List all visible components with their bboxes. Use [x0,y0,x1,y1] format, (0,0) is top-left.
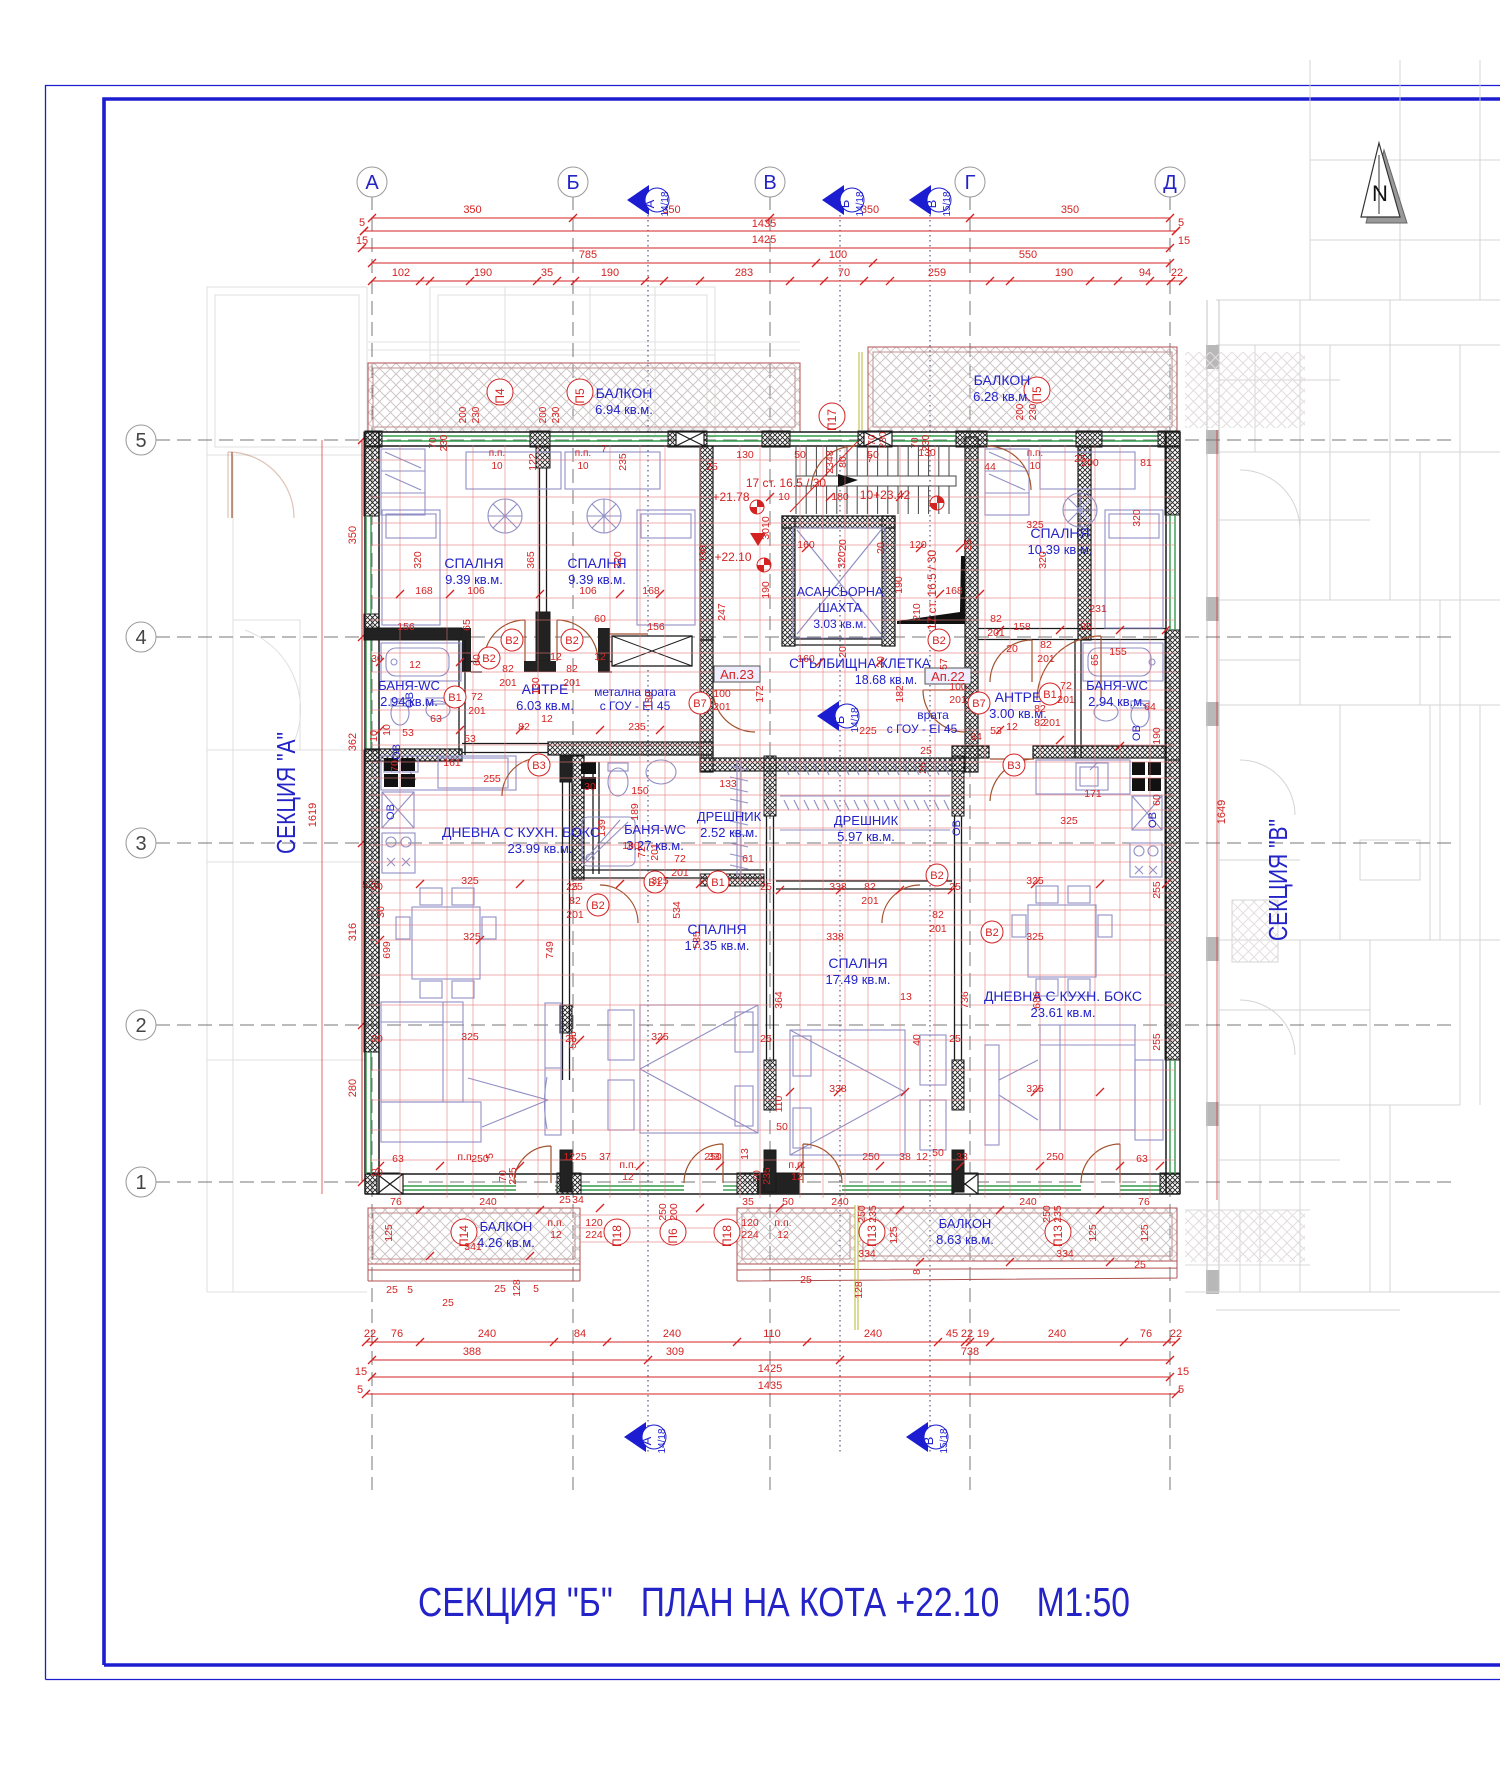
svg-text:п.п.: п.п. [1027,448,1043,459]
svg-text:200: 200 [458,406,469,423]
svg-text:ОВ: ОВ [951,820,963,836]
svg-text:190: 190 [1055,267,1073,279]
svg-text:ОВ: ОВ [1131,725,1143,741]
svg-text:122: 122 [527,453,539,471]
svg-text:230: 230 [878,431,889,448]
svg-text:53: 53 [464,733,476,745]
svg-text:240: 240 [479,1196,497,1208]
svg-text:201: 201 [671,867,689,879]
svg-text:B3: B3 [1007,760,1020,772]
svg-text:17.49 кв.м.: 17.49 кв.м. [826,972,891,987]
svg-text:106: 106 [579,585,597,597]
svg-text:388: 388 [463,1346,481,1358]
svg-text:Д: Д [1163,172,1177,194]
svg-text:19: 19 [977,1328,989,1340]
svg-text:106: 106 [467,585,485,597]
svg-text:168: 168 [415,585,433,597]
svg-text:B2: B2 [565,635,578,647]
svg-text:325: 325 [1026,519,1044,531]
svg-text:64: 64 [970,731,982,743]
svg-text:12: 12 [594,651,606,663]
svg-text:10: 10 [381,724,393,736]
svg-text:168: 168 [642,585,660,597]
svg-text:82: 82 [569,895,581,907]
svg-text:225: 225 [859,725,877,737]
svg-text:B2: B2 [482,653,495,665]
svg-text:6.03 кв.м.: 6.03 кв.м. [516,698,574,713]
svg-text:25: 25 [800,1274,812,1286]
svg-text:5: 5 [533,1283,539,1295]
svg-text:4: 4 [135,627,146,649]
svg-text:п.п.: п.п. [547,1217,564,1229]
svg-text:201: 201 [929,923,947,935]
svg-text:334: 334 [858,1248,876,1260]
svg-text:240: 240 [831,1196,849,1208]
svg-text:5: 5 [484,1153,496,1159]
svg-text:B2: B2 [985,927,998,939]
svg-text:12: 12 [1006,721,1018,733]
svg-text:736: 736 [959,991,971,1009]
svg-text:130: 130 [697,545,709,563]
svg-text:п.п.: п.п. [774,1217,791,1229]
svg-text:А: А [642,199,657,208]
svg-text:325: 325 [1026,931,1044,943]
svg-text:130: 130 [736,449,754,461]
svg-text:10: 10 [491,461,503,472]
svg-text:1: 1 [135,1172,146,1194]
svg-text:50: 50 [776,1121,788,1133]
svg-text:20: 20 [875,542,887,554]
svg-text:130: 130 [918,447,936,459]
svg-text:224: 224 [741,1229,759,1241]
svg-text:ДРЕШНИК: ДРЕШНИК [834,813,899,828]
svg-text:14/18: 14/18 [855,191,866,216]
svg-text:40: 40 [911,1034,923,1046]
svg-text:B3: B3 [532,760,545,772]
svg-text:2348: 2348 [824,450,836,474]
svg-text:17 ст. 16.5 / 30: 17 ст. 16.5 / 30 [746,476,827,490]
svg-text:201: 201 [949,694,967,706]
svg-text:201: 201 [861,895,879,907]
svg-text:82: 82 [566,663,578,675]
svg-text:5: 5 [135,430,146,452]
svg-text:1425: 1425 [758,1363,782,1375]
svg-text:П13: П13 [1051,1225,1065,1247]
svg-text:П13: П13 [865,1225,879,1247]
svg-text:5: 5 [359,217,365,229]
svg-text:190: 190 [1151,727,1163,745]
svg-text:3: 3 [135,833,146,855]
svg-text:100: 100 [829,249,847,261]
svg-text:60: 60 [594,613,606,625]
svg-text:П18: П18 [610,1225,624,1247]
svg-text:1619: 1619 [307,803,319,827]
svg-text:12: 12 [622,1171,634,1183]
svg-text:15/18: 15/18 [942,191,953,216]
svg-text:38: 38 [899,1151,911,1163]
svg-text:128: 128 [511,1279,523,1297]
svg-text:8: 8 [911,1269,923,1275]
svg-text:3.03 кв.м.: 3.03 кв.м. [813,617,866,631]
svg-text:22: 22 [1171,267,1183,279]
svg-text:25: 25 [386,1284,398,1296]
svg-text:350: 350 [1061,204,1079,216]
svg-text:201: 201 [566,909,584,921]
svg-text:25: 25 [917,762,929,774]
svg-text:44: 44 [984,461,996,473]
svg-text:63: 63 [430,713,442,725]
svg-text:22: 22 [364,1328,376,1340]
svg-text:168: 168 [945,585,963,597]
svg-text:П5: П5 [573,388,587,404]
svg-text:60: 60 [471,654,483,666]
svg-text:72: 72 [1060,680,1072,692]
svg-text:15: 15 [356,235,368,247]
svg-text:125: 125 [383,1224,395,1242]
svg-text:БАНЯ-WC: БАНЯ-WC [378,678,440,693]
svg-text:12: 12 [791,1171,803,1183]
svg-text:82: 82 [518,721,530,733]
svg-text:235: 235 [867,1205,879,1223]
svg-text:158: 158 [1013,621,1031,633]
svg-text:5: 5 [1178,1384,1184,1396]
svg-text:СЕКЦИЯ "Б" ПЛАН НА КОТА +22.: СЕКЦИЯ "Б" ПЛАН НА КОТА +22.10 М1:50 [418,1579,1130,1625]
svg-text:72: 72 [471,691,483,703]
svg-text:1435: 1435 [752,218,776,230]
svg-text:100: 100 [949,681,967,693]
svg-text:325: 325 [1026,1083,1044,1095]
svg-text:550: 550 [1019,249,1037,261]
svg-text:201: 201 [563,677,581,689]
svg-text:3010: 3010 [760,516,772,540]
svg-text:76: 76 [390,1196,402,1208]
svg-text:201: 201 [1057,694,1075,706]
svg-text:110: 110 [763,1328,781,1340]
svg-text:130: 130 [530,677,542,695]
svg-text:12: 12 [541,713,553,725]
svg-text:230: 230 [471,406,482,423]
svg-text:17 ст. 16.5 / 30: 17 ст. 16.5 / 30 [925,550,939,631]
svg-text:В: В [924,200,939,209]
svg-text:БАНЯ-WC: БАНЯ-WC [1086,678,1148,693]
svg-text:76: 76 [1140,1328,1152,1340]
svg-text:18.68 кв.м.: 18.68 кв.м. [855,673,917,687]
svg-text:82: 82 [864,881,876,893]
svg-text:метална врата: метална врата [594,685,676,699]
svg-text:Ап.23: Ап.23 [720,667,754,682]
svg-text:309: 309 [666,1346,684,1358]
svg-text:12: 12 [550,1229,562,1241]
svg-text:201: 201 [1043,717,1061,729]
svg-text:240: 240 [1048,1328,1066,1340]
svg-text:81: 81 [1140,457,1152,469]
svg-text:231: 231 [1089,603,1107,615]
svg-text:25: 25 [559,1194,571,1206]
svg-text:172: 172 [754,685,766,703]
svg-text:325: 325 [1026,875,1044,887]
svg-text:320: 320 [612,551,624,569]
svg-text:БАЛКОН: БАЛКОН [974,372,1031,388]
svg-text:25: 25 [566,881,578,893]
svg-text:СЕКЦИЯ "А": СЕКЦИЯ "А" [271,732,301,854]
svg-text:25: 25 [1074,453,1086,465]
svg-text:125: 125 [1087,1224,1099,1242]
svg-text:230: 230 [439,434,450,451]
svg-text:70: 70 [838,267,850,279]
svg-text:60: 60 [1151,794,1163,806]
svg-text:64: 64 [1144,701,1156,713]
svg-text:25: 25 [949,1033,961,1045]
svg-text:240: 240 [478,1328,496,1340]
svg-text:45: 45 [946,1328,958,1340]
svg-text:9.39 кв.м.: 9.39 кв.м. [568,572,626,587]
svg-text:338: 338 [829,1083,847,1095]
svg-text:341: 341 [464,1241,482,1253]
svg-text:190: 190 [893,576,905,594]
svg-text:50: 50 [932,1147,944,1159]
svg-text:N: N [1372,181,1388,206]
svg-text:155: 155 [1109,646,1127,658]
svg-text:201: 201 [468,705,486,717]
svg-text:53: 53 [402,727,414,739]
svg-text:280: 280 [347,1079,359,1097]
svg-text:255: 255 [1151,1033,1163,1051]
svg-text:2.94 кв.м.: 2.94 кв.м. [1088,694,1146,709]
svg-text:СЕКЦИЯ "В": СЕКЦИЯ "В" [1263,819,1293,941]
svg-text:82: 82 [932,909,944,921]
svg-text:20: 20 [837,646,849,658]
svg-text:139: 139 [596,819,608,837]
svg-text:72: 72 [636,846,648,858]
svg-text:201: 201 [499,677,517,689]
svg-text:30: 30 [584,781,596,793]
svg-text:П17: П17 [825,409,839,431]
svg-text:30: 30 [375,906,387,918]
svg-text:с ГОУ - ЕІ 45: с ГОУ - ЕІ 45 [600,699,671,713]
svg-text:160: 160 [797,653,815,665]
svg-text:п.п.: п.п. [457,1151,474,1163]
svg-text:156: 156 [647,621,665,633]
svg-text:ДРЕШНИК: ДРЕШНИК [697,809,762,824]
svg-text:65: 65 [1089,654,1101,666]
svg-text:34: 34 [572,1194,584,1206]
svg-text:70: 70 [428,437,439,449]
svg-text:110: 110 [773,1095,785,1112]
svg-text:5: 5 [357,1384,363,1396]
svg-text:5: 5 [1178,217,1184,229]
svg-text:250: 250 [862,1151,880,1163]
svg-text:70: 70 [867,434,878,446]
svg-text:В: В [921,1437,936,1446]
svg-text:1649: 1649 [1216,800,1228,824]
svg-text:120: 120 [585,1217,603,1229]
svg-text:325: 325 [651,1031,669,1043]
svg-text:80: 80 [837,456,849,468]
svg-text:247: 247 [716,603,728,621]
svg-text:СПАЛНЯ: СПАЛНЯ [444,555,503,571]
svg-text:ОВ: ОВ [385,804,397,820]
svg-text:B7: B7 [693,698,706,710]
svg-text:22: 22 [961,1328,973,1340]
svg-text:ОВ: ОВ [404,692,416,708]
svg-text:33: 33 [708,1151,720,1163]
svg-text:255: 255 [1151,881,1163,899]
svg-text:B1: B1 [1043,689,1056,701]
svg-text:25: 25 [565,1033,577,1045]
svg-text:50: 50 [794,449,806,461]
svg-text:200: 200 [1015,403,1026,420]
svg-text:B2: B2 [930,870,943,882]
svg-text:П4: П4 [493,388,507,404]
svg-text:171: 171 [1084,788,1102,800]
svg-text:250: 250 [1046,1151,1064,1163]
svg-text:15: 15 [355,1366,367,1378]
svg-text:259: 259 [928,267,946,279]
svg-text:57: 57 [938,658,950,670]
svg-text:1225: 1225 [563,1151,587,1163]
svg-text:12: 12 [916,1151,928,1163]
svg-text:ДНЕВНА С КУХН. БОКС: ДНЕВНА С КУХН. БОКС [984,988,1142,1004]
svg-text:133: 133 [719,778,737,790]
svg-text:8.63 кв.м.: 8.63 кв.м. [936,1232,994,1247]
svg-text:325: 325 [1060,815,1078,827]
svg-text:СПАЛНЯ: СПАЛНЯ [828,955,887,971]
svg-text:Б: Б [837,200,852,209]
svg-text:12: 12 [550,651,562,663]
svg-text:100: 100 [713,688,731,700]
svg-text:B7: B7 [972,698,985,710]
svg-text:338: 338 [826,931,844,943]
svg-text:33: 33 [956,1151,968,1163]
svg-text:25: 25 [1134,1259,1146,1271]
svg-text:190: 190 [601,267,619,279]
svg-text:25: 25 [760,1033,772,1045]
svg-text:6.94 кв.м.: 6.94 кв.м. [595,402,653,417]
svg-text:190: 190 [474,267,492,279]
svg-text:200: 200 [538,406,549,423]
svg-text:1425: 1425 [752,234,776,246]
svg-text:П6: П6 [666,1228,680,1244]
svg-text:ДНЕВНА С КУХН. БОКС: ДНЕВНА С КУХН. БОКС [442,824,600,840]
svg-text:61: 61 [742,853,754,865]
svg-text:ШАХТА: ШАХТА [818,601,862,615]
svg-text:102: 102 [392,267,410,279]
svg-text:240: 240 [1019,1196,1037,1208]
svg-text:Б: Б [566,172,579,194]
svg-text:325: 325 [651,875,669,887]
svg-text:235: 235 [1052,1205,1064,1223]
svg-text:B2: B2 [591,900,604,912]
svg-text:210: 210 [911,603,923,621]
svg-text:235: 235 [761,1167,773,1185]
svg-text:63: 63 [1136,1153,1148,1165]
svg-text:7: 7 [601,443,607,455]
svg-text:82: 82 [1034,703,1046,715]
svg-text:125: 125 [1139,1224,1151,1242]
svg-text:350: 350 [463,204,481,216]
svg-text:63: 63 [392,1153,404,1165]
svg-text:686: 686 [1031,991,1043,1009]
svg-text:94: 94 [1139,267,1151,279]
svg-text:224: 224 [585,1229,603,1241]
svg-text:14/18: 14/18 [657,1428,668,1453]
svg-text:320: 320 [1037,551,1049,569]
svg-text:189: 189 [629,803,641,821]
svg-text:201: 201 [1037,653,1055,665]
svg-text:+21.78: +21.78 [712,490,749,504]
svg-text:201: 201 [713,701,731,713]
svg-text:749: 749 [544,941,556,959]
svg-text:230: 230 [1028,403,1039,420]
svg-text:84: 84 [574,1328,586,1340]
svg-text:180: 180 [831,491,849,503]
svg-text:14/18: 14/18 [850,707,861,732]
svg-text:240: 240 [663,1328,681,1340]
svg-text:БАЛКОН: БАЛКОН [939,1216,992,1231]
svg-text:13: 13 [739,1148,751,1160]
svg-text:15/18: 15/18 [939,1428,950,1453]
svg-text:738: 738 [961,1346,979,1358]
svg-text:25: 25 [920,745,932,757]
svg-text:25: 25 [442,1297,454,1309]
svg-text:врата: врата [917,708,949,722]
svg-text:35: 35 [742,1196,754,1208]
svg-text:п.п.: п.п. [489,448,505,459]
svg-text:5.97 кв.м.: 5.97 кв.м. [837,829,895,844]
svg-text:316: 316 [347,923,359,941]
svg-text:Г: Г [965,172,976,194]
svg-text:БАЛКОН: БАЛКОН [596,385,653,401]
svg-text:А: А [365,172,379,194]
svg-text:82: 82 [1040,639,1052,651]
svg-text:30: 30 [371,881,383,893]
svg-text:15: 15 [1178,235,1190,247]
svg-text:П5: П5 [1030,386,1044,402]
svg-text:699: 699 [381,941,393,959]
svg-text:320: 320 [412,551,424,569]
svg-text:201: 201 [987,627,1005,639]
svg-text:70: 70 [389,760,401,772]
svg-text:B1: B1 [448,692,461,704]
svg-text:АСАНСЬОРНА: АСАНСЬОРНА [797,585,884,599]
svg-text:235: 235 [617,453,629,471]
svg-text:65: 65 [461,619,473,631]
svg-text:АНТРЕ: АНТРЕ [522,681,569,697]
svg-text:БАЛКОН: БАЛКОН [480,1219,533,1234]
svg-text:365: 365 [525,551,537,569]
svg-text:320: 320 [1131,509,1143,527]
svg-text:201: 201 [649,843,661,861]
svg-text:10: 10 [577,461,589,472]
svg-text:Б: Б [832,716,847,725]
svg-text:50: 50 [782,1196,794,1208]
svg-text:76: 76 [391,1328,403,1340]
svg-text:320: 320 [836,551,848,569]
svg-text:23.99 кв.м.: 23.99 кв.м. [508,841,573,856]
svg-text:В: В [763,172,776,194]
svg-text:2: 2 [135,1015,146,1037]
svg-text:534: 534 [671,901,683,919]
svg-text:350: 350 [347,526,359,544]
svg-text:B1: B1 [711,877,724,889]
svg-text:240: 240 [864,1328,882,1340]
svg-text:150: 150 [631,785,649,797]
svg-text:+22.10: +22.10 [714,550,751,564]
svg-text:п.п.: п.п. [575,448,591,459]
svg-text:53: 53 [990,725,1002,737]
svg-text:182: 182 [894,685,906,703]
svg-text:230: 230 [551,406,562,423]
